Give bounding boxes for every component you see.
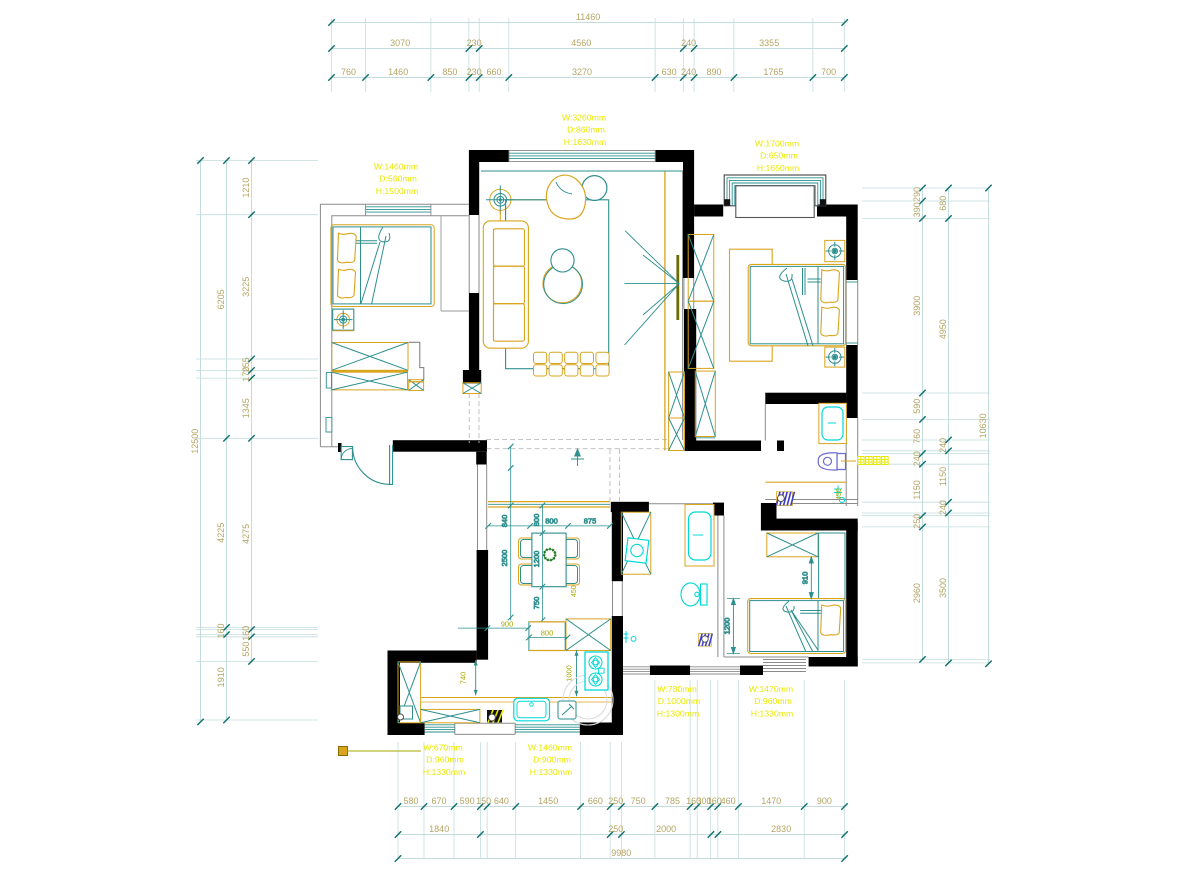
svg-text:W:1460mm: W:1460mm [374, 162, 418, 172]
svg-text:1200: 1200 [723, 618, 732, 635]
svg-text:875: 875 [584, 517, 597, 526]
svg-text:160: 160 [707, 796, 722, 806]
svg-text:11460: 11460 [576, 12, 600, 22]
svg-text:640: 640 [494, 796, 509, 806]
svg-text:D:860mm: D:860mm [567, 125, 605, 135]
svg-text:160: 160 [241, 626, 251, 641]
svg-text:450: 450 [571, 585, 578, 597]
svg-text:760: 760 [341, 67, 356, 77]
svg-text:800: 800 [532, 514, 541, 527]
svg-text:2960: 2960 [912, 583, 922, 603]
svg-text:10630: 10630 [978, 413, 988, 438]
svg-text:6205: 6205 [216, 289, 226, 309]
svg-text:H:1630mm: H:1630mm [564, 137, 607, 147]
svg-text:4950: 4950 [938, 319, 948, 339]
svg-text:170: 170 [241, 367, 251, 382]
svg-text:800: 800 [545, 517, 558, 526]
svg-text:460: 460 [721, 796, 736, 806]
svg-text:760: 760 [912, 429, 922, 444]
svg-text:3355: 3355 [759, 38, 779, 48]
svg-text:740: 740 [459, 672, 468, 685]
svg-text:4275: 4275 [241, 524, 251, 544]
svg-text:4560: 4560 [571, 38, 591, 48]
svg-text:750: 750 [631, 796, 646, 806]
svg-text:900: 900 [817, 796, 832, 806]
svg-text:840: 840 [500, 515, 509, 528]
svg-text:3225: 3225 [241, 277, 251, 297]
svg-text:390: 390 [912, 202, 922, 217]
svg-text:1345: 1345 [241, 398, 251, 418]
svg-text:250: 250 [608, 824, 623, 834]
svg-text:D:960mm: D:960mm [426, 755, 464, 765]
svg-text:3070: 3070 [390, 38, 410, 48]
svg-text:800: 800 [541, 629, 554, 638]
svg-text:1210: 1210 [241, 178, 251, 198]
svg-text:290: 290 [912, 187, 922, 202]
svg-text:680: 680 [938, 196, 948, 211]
svg-text:1470: 1470 [761, 796, 781, 806]
svg-text:D:960mm: D:960mm [754, 696, 792, 706]
svg-text:W:1470mm: W:1470mm [749, 684, 793, 694]
svg-text:3900: 3900 [912, 296, 922, 316]
svg-text:240: 240 [938, 500, 948, 515]
svg-text:D:1000mm: D:1000mm [658, 696, 701, 706]
svg-text:1200: 1200 [532, 551, 541, 568]
svg-text:3500: 3500 [938, 578, 948, 598]
svg-text:785: 785 [665, 796, 680, 806]
svg-text:630: 630 [662, 67, 677, 77]
svg-text:580: 580 [403, 796, 418, 806]
svg-text:1450: 1450 [538, 796, 558, 806]
svg-text:H:1330mm: H:1330mm [530, 767, 573, 777]
svg-text:240: 240 [912, 451, 922, 466]
svg-text:670: 670 [431, 796, 446, 806]
svg-text:240: 240 [938, 438, 948, 453]
svg-text:9980: 9980 [611, 848, 631, 858]
svg-text:2830: 2830 [771, 824, 791, 834]
svg-text:1460: 1460 [388, 67, 408, 77]
svg-text:160: 160 [216, 623, 226, 638]
svg-text:2500: 2500 [500, 550, 509, 567]
svg-text:890: 890 [706, 67, 721, 77]
svg-text:W:1460mm: W:1460mm [528, 743, 572, 753]
svg-text:150: 150 [476, 796, 491, 806]
svg-text:12500: 12500 [190, 429, 200, 454]
svg-text:230: 230 [467, 38, 482, 48]
svg-text:700: 700 [821, 67, 836, 77]
svg-text:1765: 1765 [763, 67, 783, 77]
svg-text:590: 590 [912, 399, 922, 414]
svg-text:H:1650mm: H:1650mm [757, 163, 800, 173]
svg-text:4225: 4225 [216, 523, 226, 543]
svg-text:910: 910 [801, 572, 810, 585]
svg-text:850: 850 [442, 67, 457, 77]
svg-text:750: 750 [532, 597, 541, 610]
svg-text:W:780mm: W:780mm [657, 684, 696, 694]
svg-text:450: 450 [836, 488, 843, 500]
svg-text:660: 660 [486, 67, 501, 77]
svg-text:H:1330mm: H:1330mm [751, 708, 794, 718]
svg-text:H:1500mm: H:1500mm [376, 186, 419, 196]
svg-text:1910: 1910 [216, 667, 226, 687]
svg-text:1150: 1150 [912, 480, 922, 499]
svg-text:D:650mm: D:650mm [760, 151, 798, 161]
svg-text:W:670mm: W:670mm [423, 743, 462, 753]
svg-text:250: 250 [912, 514, 922, 529]
svg-text:660: 660 [588, 796, 603, 806]
svg-text:590: 590 [460, 796, 475, 806]
svg-text:W:3260mm: W:3260mm [562, 113, 606, 123]
svg-text:900: 900 [501, 620, 514, 629]
svg-text:550: 550 [241, 642, 251, 657]
svg-text:1150: 1150 [938, 467, 948, 486]
svg-text:W:1700mm: W:1700mm [755, 139, 799, 149]
svg-text:D:900mm: D:900mm [533, 755, 571, 765]
svg-text:240: 240 [681, 38, 696, 48]
svg-text:D:560mm: D:560mm [379, 174, 417, 184]
svg-text:2000: 2000 [656, 824, 676, 834]
svg-text:H:1330mm: H:1330mm [423, 767, 466, 777]
svg-text:1000: 1000 [565, 665, 574, 682]
svg-text:3270: 3270 [572, 67, 592, 77]
svg-text:1840: 1840 [429, 824, 449, 834]
svg-text:240: 240 [681, 67, 696, 77]
svg-text:230: 230 [467, 67, 482, 77]
svg-text:H:1300mm: H:1300mm [657, 708, 700, 718]
svg-text:250: 250 [608, 796, 623, 806]
